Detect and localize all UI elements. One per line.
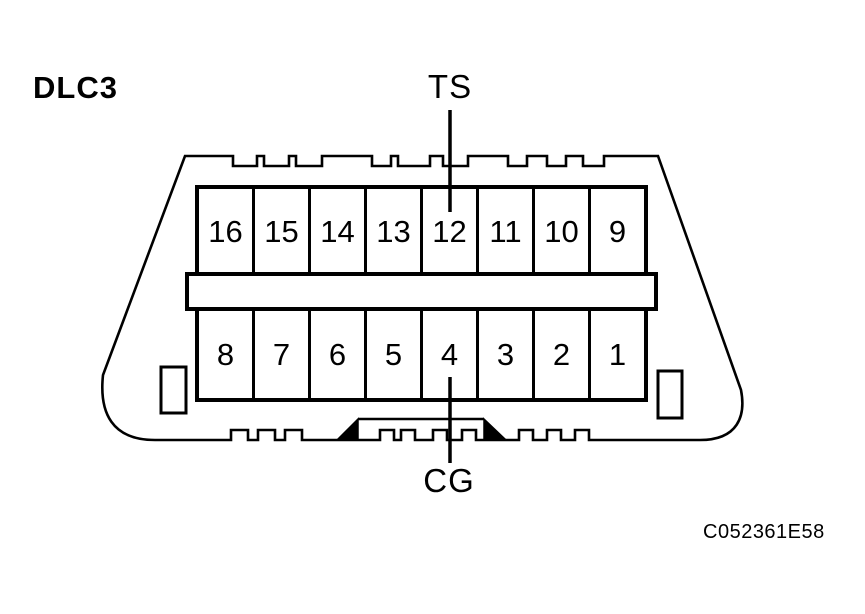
pin-cell-14: 14 [311, 189, 367, 274]
left-mounting-slot [161, 367, 186, 413]
pin-number: 2 [553, 337, 570, 373]
pin-cell-12: 12 [423, 189, 479, 274]
pin-cell-13: 13 [367, 189, 423, 274]
pin-number: 15 [264, 214, 298, 250]
key-left-wedge [337, 419, 358, 440]
pin-cell-2: 2 [535, 311, 591, 398]
right-mounting-slot [658, 371, 682, 418]
pin-cell-7: 7 [255, 311, 311, 398]
pin-cell-11: 11 [479, 189, 535, 274]
connector-center-bar [185, 272, 658, 311]
pin-number: 13 [376, 214, 410, 250]
pin-cell-16: 16 [199, 189, 255, 274]
pin-cell-15: 15 [255, 189, 311, 274]
pin-number: 3 [497, 337, 514, 373]
pin-cell-1: 1 [591, 311, 644, 398]
pin-cell-3: 3 [479, 311, 535, 398]
pin-number: 11 [489, 214, 521, 250]
pin-cell-8: 8 [199, 311, 255, 398]
pin-cell-9: 9 [591, 189, 644, 274]
pin-cell-4: 4 [423, 311, 479, 398]
pin-cell-10: 10 [535, 189, 591, 274]
pin-number: 14 [320, 214, 354, 250]
pin-number: 7 [273, 337, 290, 373]
pin-number: 9 [609, 214, 626, 250]
pin-number: 6 [329, 337, 346, 373]
pin-number: 1 [609, 337, 626, 373]
dlc3-pinout-diagram: DLC3 TS CG 16 15 14 13 12 11 10 9 8 7 6 … [0, 0, 865, 614]
pin-cell-5: 5 [367, 311, 423, 398]
pin-number: 10 [544, 214, 578, 250]
pin-number: 4 [441, 337, 458, 373]
key-right-wedge [484, 419, 506, 440]
pin-row-bottom: 8 7 6 5 4 3 2 1 [195, 307, 648, 402]
pin-number: 8 [217, 337, 234, 373]
pin-row-top: 16 15 14 13 12 11 10 9 [195, 185, 648, 278]
pin-cell-6: 6 [311, 311, 367, 398]
pin-number: 16 [208, 214, 242, 250]
pin-number: 12 [432, 214, 466, 250]
pin-number: 5 [385, 337, 402, 373]
